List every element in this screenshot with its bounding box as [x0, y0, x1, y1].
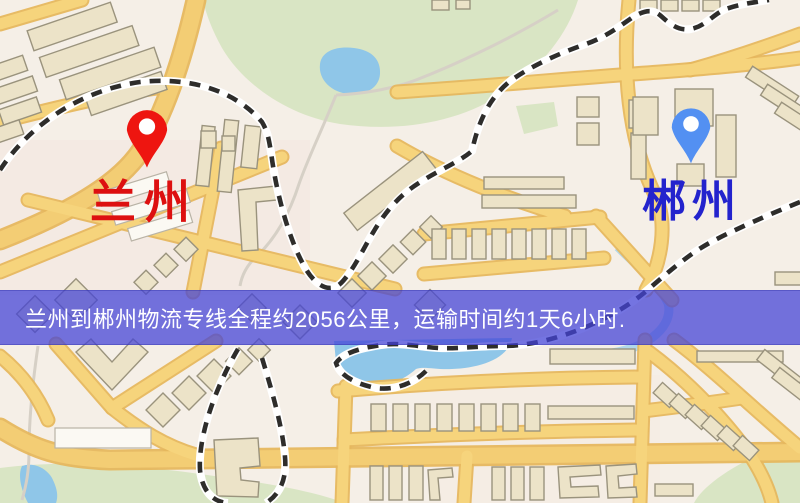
map-canvas	[0, 0, 800, 503]
route-info-banner: 兰州到郴州物流专线全程约2056公里，运输时间约1天6小时.	[0, 290, 800, 345]
origin-label: 兰州	[90, 179, 198, 225]
destination-label: 郴州	[642, 180, 742, 224]
logistics-route-map: 兰州 郴州 兰州到郴州物流专线全程约2056公里，运输时间约1天6小时.	[0, 0, 800, 503]
destination-pin-icon	[669, 102, 713, 166]
route-info-text: 兰州到郴州物流专线全程约2056公里，运输时间约1天6小时.	[0, 302, 626, 334]
origin-pin-icon	[124, 104, 170, 170]
